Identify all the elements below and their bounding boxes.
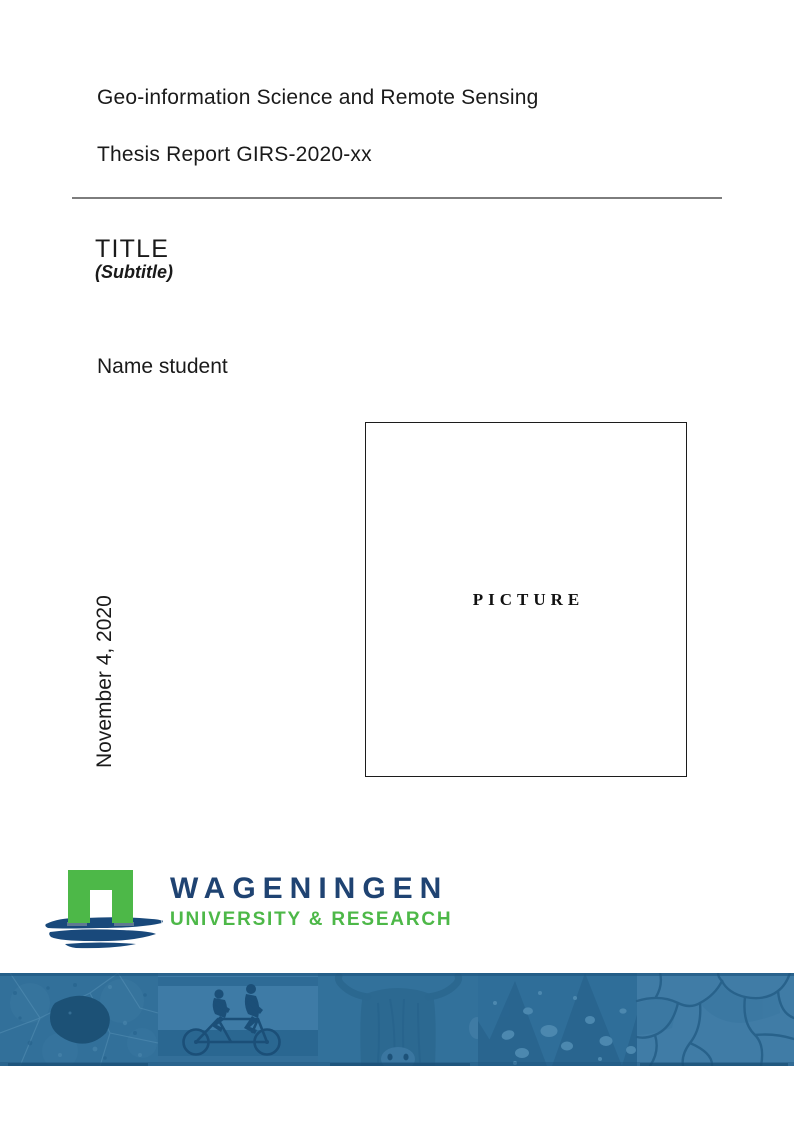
footer-photo-banner [0, 973, 794, 1066]
banner-photo-leaf-droplets [478, 973, 641, 1066]
picture-placeholder-label: PICTURE [468, 590, 585, 610]
program-name: Geo-information Science and Remote Sensi… [97, 86, 538, 110]
wur-tagline: UNIVERSITY & RESEARCH [170, 909, 452, 931]
wur-arch-icon [40, 860, 170, 955]
header-divider [72, 197, 722, 199]
page-title: TITLE [95, 235, 169, 264]
page-subtitle: (Subtitle) [95, 262, 173, 283]
banner-photo-cracked-earth [637, 973, 794, 1066]
wur-wordmark: WAGENINGEN [170, 872, 448, 906]
publication-date: November 4, 2020 [93, 593, 117, 768]
banner-photo-highland-cow [318, 973, 485, 1066]
banner-photo-aerial-parcels [0, 973, 158, 1066]
thesis-cover-page: Geo-information Science and Remote Sensi… [0, 0, 794, 1123]
report-number: Thesis Report GIRS-2020-xx [97, 143, 372, 167]
banner-photo-tandem-cyclists [158, 973, 318, 1066]
author-name: Name student [97, 355, 228, 379]
picture-placeholder-box: PICTURE [365, 422, 687, 777]
